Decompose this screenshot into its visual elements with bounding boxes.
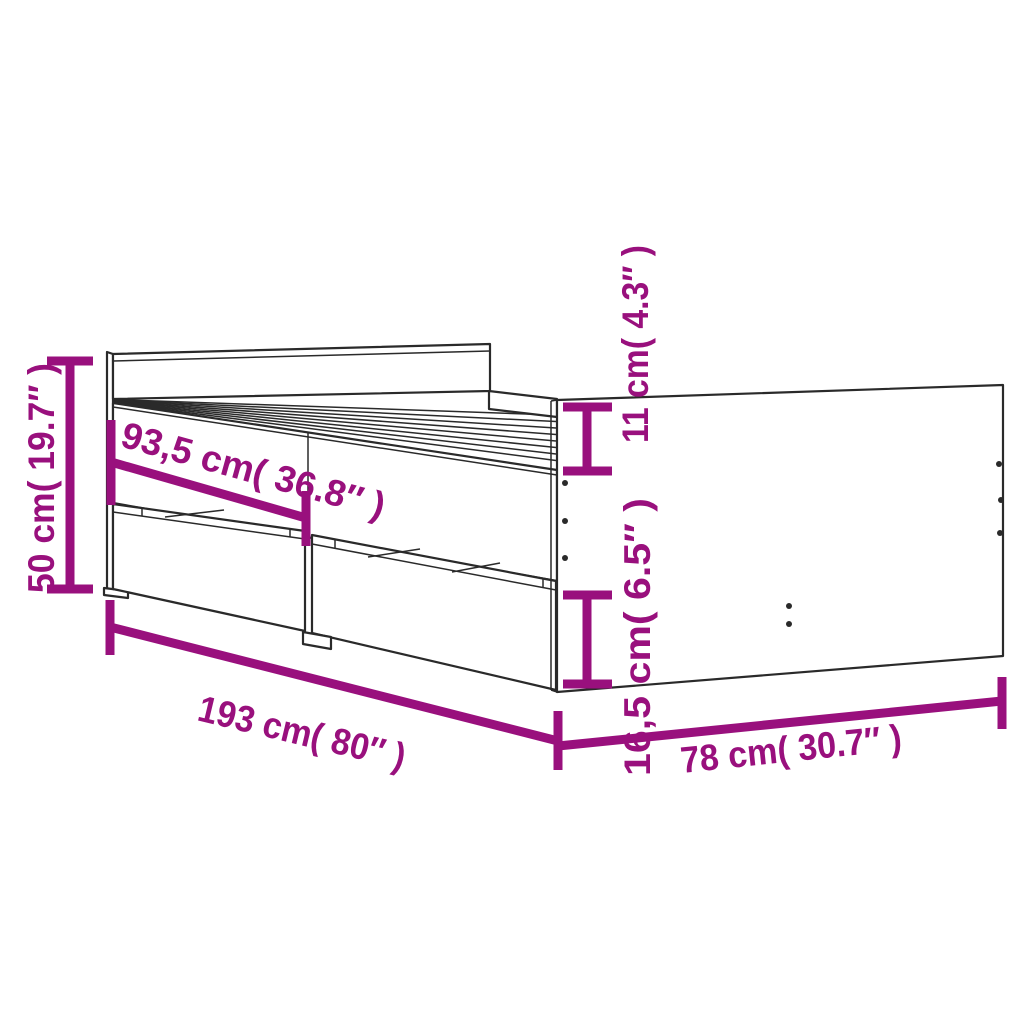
diagram-canvas: 50 cm( 19.7″ ) 93,5 cm( 36.8″ ) 11 cm( 4… [0,0,1024,1024]
dimension-total-height: 50 cm( 19.7″ ) [21,361,93,593]
dimension-label-total-height: 50 cm( 19.7″ ) [21,363,62,593]
dimension-label-total-length: 193 cm( 80″ ) [194,688,410,777]
screw-hole-dot [998,497,1004,503]
screw-hole-dot [786,621,792,627]
screw-hole-dot [996,461,1002,467]
screw-hole-dot [562,555,568,561]
screw-hole-dot [562,480,568,486]
footboard-corner-top [551,400,557,401]
bed-frame-drawing [104,344,1004,692]
screw-hole-dot [562,518,568,524]
screw-hole-dot [997,530,1003,536]
screw-hole-dot [786,603,792,609]
bed-frame-dimension-diagram: 50 cm( 19.7″ ) 93,5 cm( 36.8″ ) 11 cm( 4… [0,0,1024,1024]
dimension-label-top-rail-height: 11 cm( 4.3″ ) [615,245,656,443]
